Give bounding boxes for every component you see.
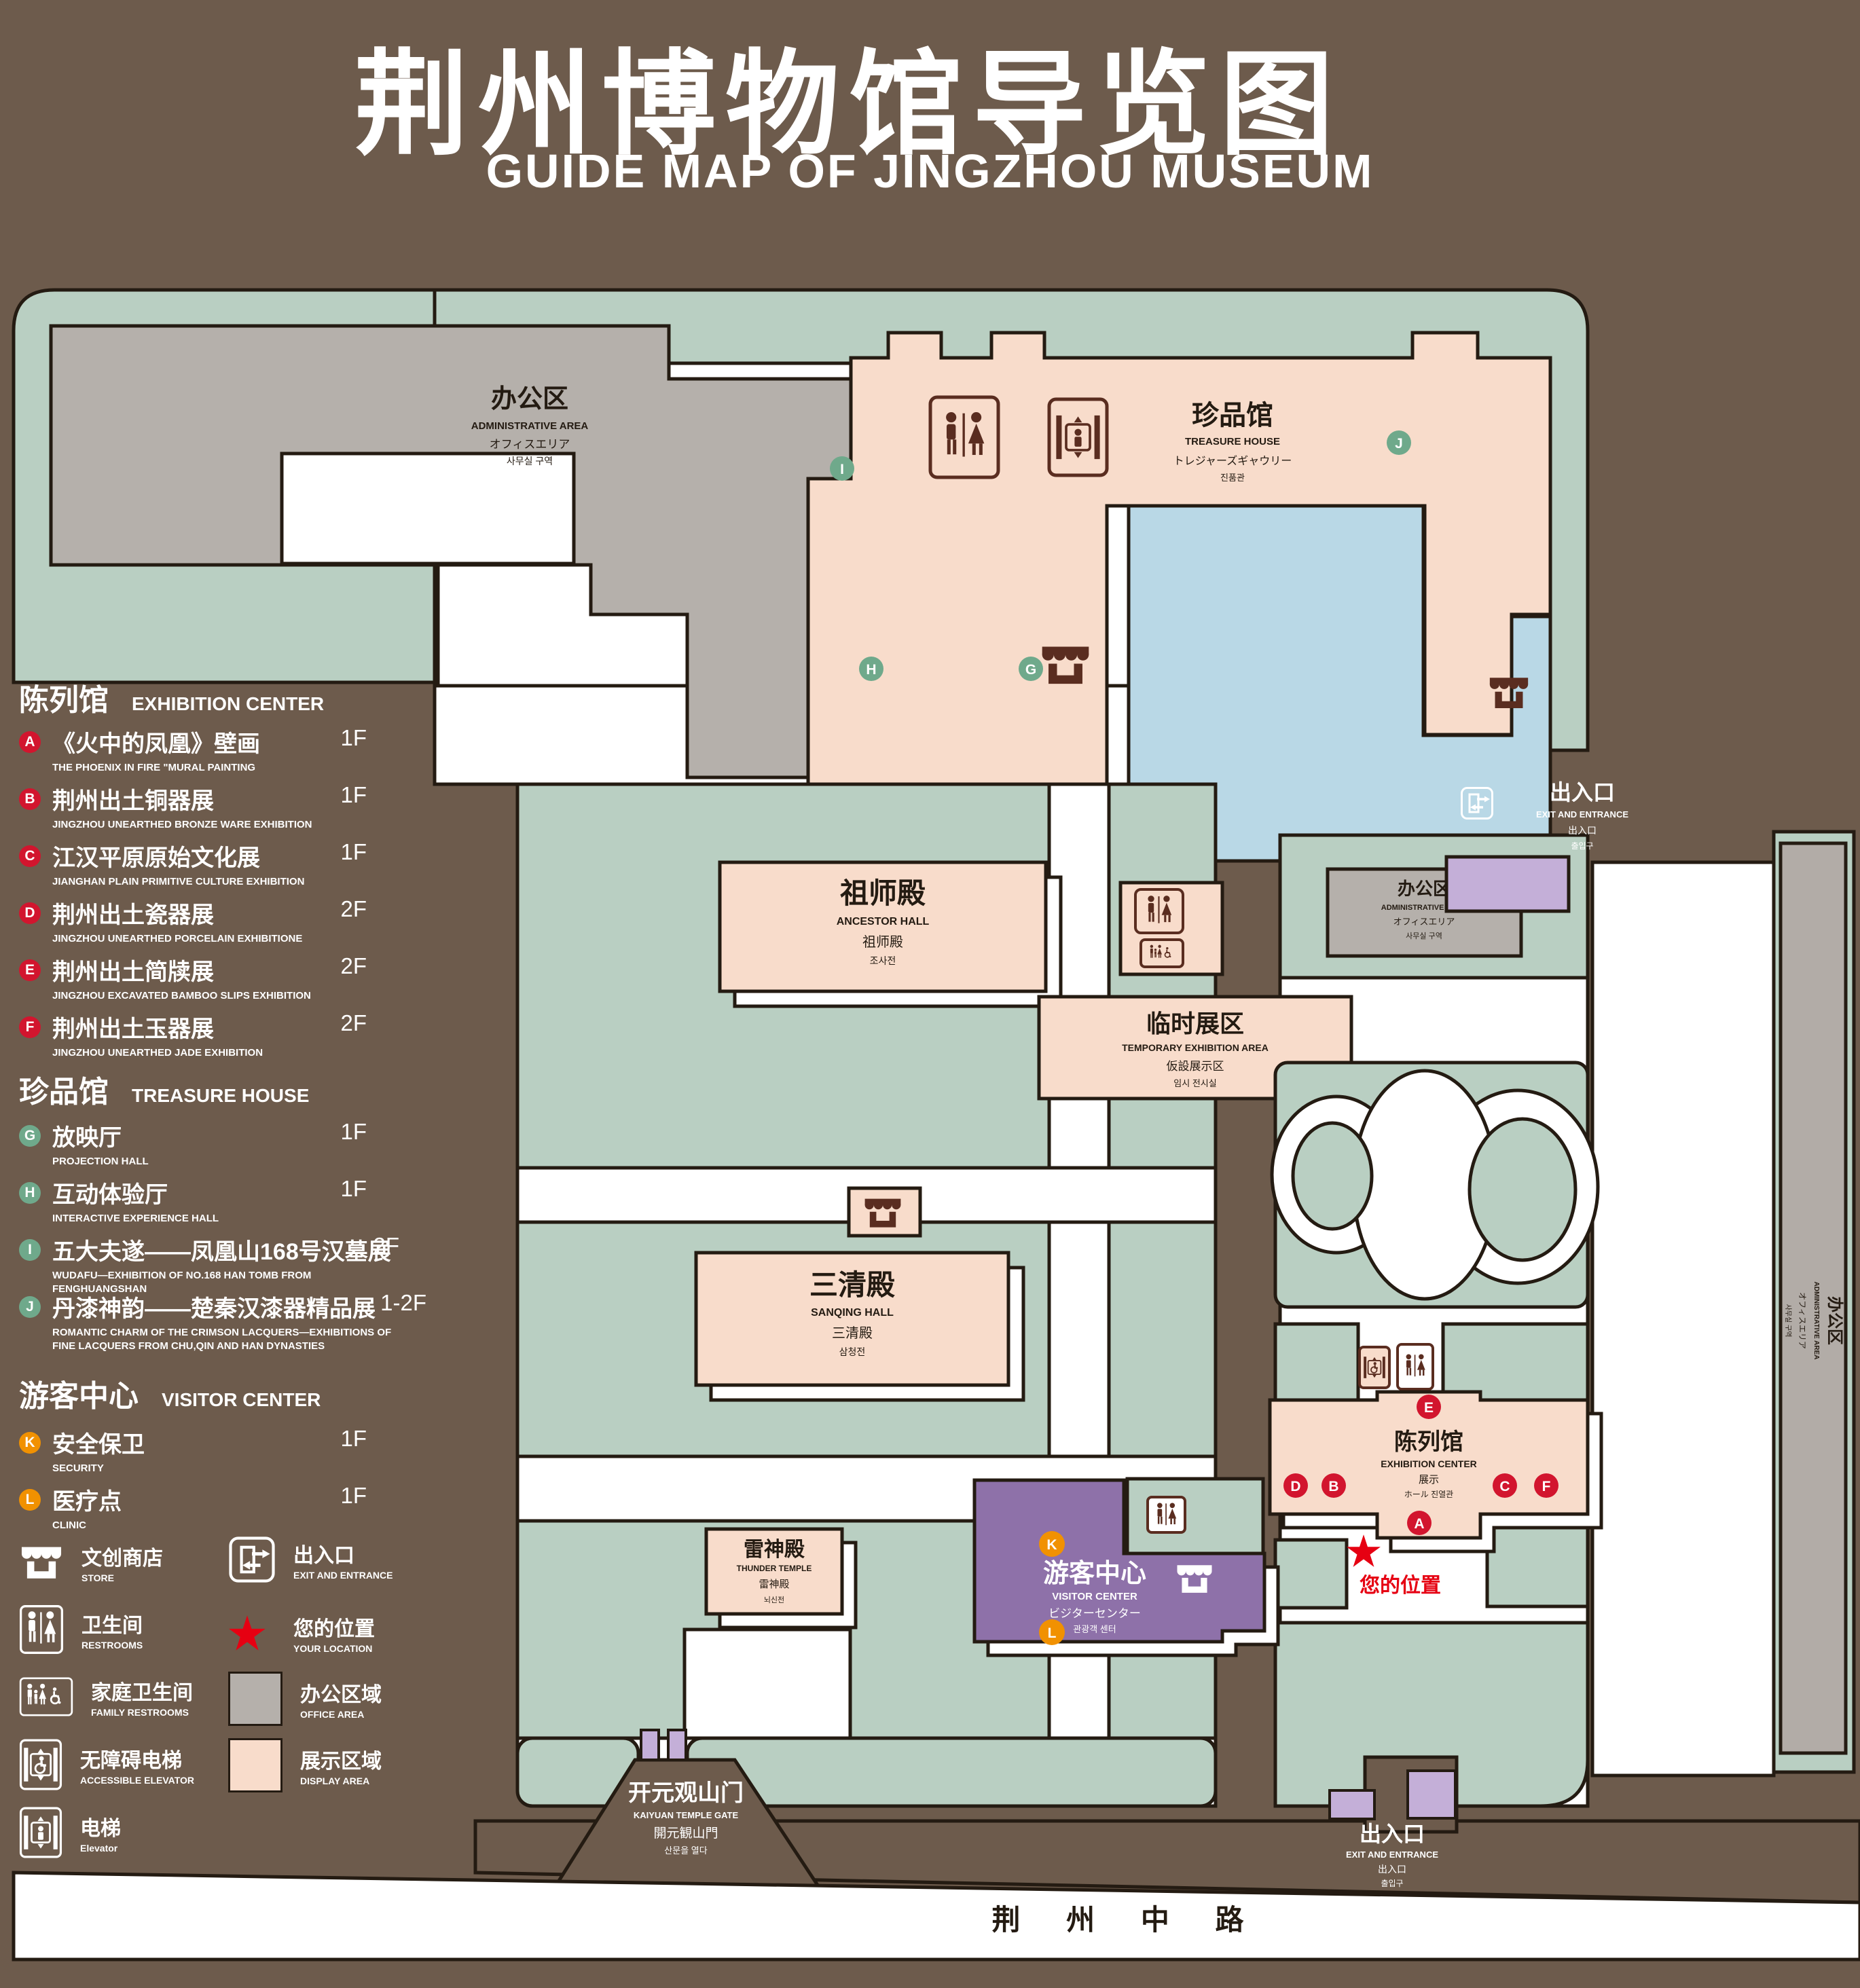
svg-text:L: L <box>1048 1625 1057 1641</box>
symbol-zh: 文创商店 <box>81 1541 163 1571</box>
item-en: INTERACTIVE EXPERIENCE HALL <box>52 1212 358 1226</box>
badge-a: A <box>19 731 41 753</box>
sanqing-label-ja: 三清殿 <box>832 1325 873 1341</box>
ancestor-label-en: ANCESTOR HALL <box>837 916 930 927</box>
admin-tl-label-ja: オフィスエリア <box>490 438 570 451</box>
symbol-zh: 无障碍电梯 <box>80 1744 194 1773</box>
badge-f: F <box>19 1016 41 1038</box>
legend-item-c: C江汉平原原始文化展1F JIANGHAN PLAIN PRIMITIVE CU… <box>19 839 367 889</box>
exit-tr-ko: 출입구 <box>1571 841 1593 851</box>
item-en: JIANGHAN PLAIN PRIMITIVE CULTURE EXHIBIT… <box>52 875 358 889</box>
exit-b-en: EXIT AND ENTRANCE <box>1346 1849 1438 1860</box>
court-gate-right <box>687 1738 1216 1806</box>
gate-pillar-left <box>641 1730 659 1760</box>
section-title-zh: 游客中心 <box>19 1380 139 1413</box>
symbol-zh: 卫生间 <box>81 1608 143 1638</box>
legend-symbol-office-area: 办公区域OFFICE AREA <box>228 1672 382 1726</box>
item-en: ROMANTIC CHARM OF THE CRIMSON LACQUERS—E… <box>52 1326 405 1352</box>
symbol-zh: 出入口 <box>293 1539 393 1568</box>
svg-text:C: C <box>1499 1479 1510 1494</box>
accessible-elevator-icon <box>24 1748 58 1782</box>
item-floor: 1F <box>340 1119 367 1145</box>
visitor-label-zh: 游客中心 <box>1043 1559 1146 1588</box>
garden-island-left <box>1293 1123 1372 1229</box>
legend-item-j: J丹漆神韵——楚秦汉漆器精品展1-2F ROMANTIC CHARM OF TH… <box>19 1290 426 1352</box>
item-zh: 《火中的凤凰》壁画 <box>52 725 260 758</box>
map-badge-d: D <box>1283 1473 1308 1498</box>
exit-b-ko: 출입구 <box>1381 1879 1403 1888</box>
badge-h: H <box>19 1182 41 1204</box>
map-badge-h: H <box>859 657 883 681</box>
thunder-label-zh: 雷神殿 <box>744 1539 805 1561</box>
garden <box>1272 1063 1598 1307</box>
building-sanqing-hall: 三清殿 SANQING HALL 三清殿 삼청전 <box>696 1253 1023 1400</box>
symbol-en: EXIT AND ENTRANCE <box>293 1570 393 1581</box>
item-floor: 1F <box>340 1176 367 1202</box>
exit-tr-zh: 出入口 <box>1550 780 1615 805</box>
admin-r-label-ja: オフィスエリア <box>1393 917 1455 927</box>
item-zh: 江汉平原原始文化展 <box>52 839 260 872</box>
office-area-swatch <box>228 1672 282 1726</box>
store-icon <box>22 1547 61 1579</box>
item-floor: 2F <box>373 1233 399 1259</box>
map-badge-e: E <box>1417 1395 1441 1419</box>
map-badge-i: I <box>830 456 854 481</box>
legend-item-l: L医疗点1F CLINIC <box>19 1483 367 1532</box>
item-en: JINGZHOU UNEARTHED PORCELAIN EXHIBITIONE <box>52 932 358 946</box>
display-area-swatch <box>228 1738 282 1792</box>
badge-g: G <box>19 1125 41 1147</box>
item-floor: 1F <box>340 1426 367 1452</box>
kaiyuan-ko: 산문을 열다 <box>664 1845 707 1856</box>
badge-b: B <box>19 788 41 810</box>
your-location-star <box>229 1615 266 1651</box>
svg-text:I: I <box>840 462 844 477</box>
ancestor-label-ko: 조사전 <box>870 955 896 966</box>
map-badge-f: F <box>1534 1473 1558 1498</box>
svg-text:K: K <box>1046 1537 1057 1553</box>
exh-label-ja: 展示 <box>1419 1474 1439 1486</box>
legend-symbol-accessible-elevator: 无障碍电梯ACCESSIBLE ELEVATOR <box>19 1738 194 1791</box>
legend-item-a: A《火中的凤凰》壁画1F THE PHOENIX IN FIRE "MURAL … <box>19 725 367 775</box>
map-badge-j: J <box>1387 430 1411 455</box>
garden-island-right <box>1470 1119 1575 1260</box>
map-badge-a: A <box>1407 1511 1432 1535</box>
badge-j: J <box>19 1296 41 1318</box>
symbol-zh: 家庭卫生间 <box>91 1676 193 1706</box>
map-badge-c: C <box>1493 1473 1517 1498</box>
building-ancestor-hall: 祖师殿 ANCESTOR HALL 祖师殿 조사전 <box>720 862 1061 1006</box>
item-zh: 荆州出土玉器展 <box>52 1010 214 1044</box>
item-zh: 荆州出土简牍展 <box>52 953 214 987</box>
ancestor-label-zh: 祖师殿 <box>840 877 926 909</box>
item-zh: 医疗点 <box>52 1483 122 1516</box>
sanqing-label-ko: 삼청전 <box>839 1346 866 1357</box>
legend-symbol-exit: 出入口EXIT AND ENTRANCE <box>228 1536 393 1583</box>
symbol-zh: 展示区域 <box>300 1744 382 1774</box>
item-en: JINGZHOU UNEARTHED JADE EXHIBITION <box>52 1046 358 1060</box>
exh-label-en: EXHIBITION CENTER <box>1381 1458 1477 1469</box>
map-badge-b: B <box>1321 1473 1346 1498</box>
treasure-label-ko: 진품관 <box>1220 473 1245 483</box>
treasure-label-en: TREASURE HOUSE <box>1185 436 1280 447</box>
item-zh: 荆州出土瓷器展 <box>52 896 214 929</box>
item-zh: 五大夫遂——凤凰山168号汉墓展 <box>52 1233 391 1266</box>
exh-label-ko: ホール 진열관 <box>1404 1490 1453 1499</box>
item-zh: 丹漆神韵——楚秦汉漆器精品展 <box>52 1290 376 1323</box>
kaiyuan-ja: 開元観山門 <box>653 1826 718 1841</box>
item-floor: 1-2F <box>380 1290 426 1316</box>
item-zh: 荆州出土铜器展 <box>52 782 214 815</box>
legend-symbol-store: 文创商店STORE <box>19 1540 163 1585</box>
temp-label-ja: 仮設展示区 <box>1167 1060 1224 1073</box>
exit-b-ja: 出入口 <box>1378 1864 1406 1875</box>
item-floor: 2F <box>340 1010 367 1036</box>
legend-item-d: D荆州出土瓷器展2F JINGZHOU UNEARTHED PORCELAIN … <box>19 896 367 946</box>
temp-label-ko: 임시 전시실 <box>1173 1078 1216 1088</box>
elevator-icon <box>24 1816 58 1849</box>
symbol-en: RESTROOMS <box>81 1640 143 1651</box>
legend-item-i: I五大夫遂——凤凰山168号汉墓展2F WUDAFU—EXHIBITION OF… <box>19 1233 399 1295</box>
exh-label-zh: 陈列馆 <box>1394 1429 1463 1455</box>
svg-text:B: B <box>1328 1479 1338 1494</box>
ancestor-label-ja: 祖师殿 <box>862 934 903 950</box>
building-exhibition-center: 陈列馆 EXHIBITION CENTER 展示 ホール 진열관 E D B C… <box>1270 1392 1601 1551</box>
item-en: JINGZHOU UNEARTHED BRONZE WARE EXHIBITIO… <box>52 818 358 832</box>
exit-icon <box>231 1539 274 1581</box>
sanqing-label-zh: 三清殿 <box>809 1269 895 1301</box>
legend-item-e: E荆州出土简牍展2F JINGZHOU EXCAVATED BAMBOO SLI… <box>19 953 367 1003</box>
item-floor: 1F <box>340 839 367 865</box>
symbol-zh: 办公区域 <box>300 1678 382 1708</box>
symbol-zh: 您的位置 <box>293 1612 375 1642</box>
legend-item-k: K安全保卫1F SECURITY <box>19 1426 367 1475</box>
visitor-label-en: VISITOR CENTER <box>1052 1591 1137 1602</box>
item-en: CLINIC <box>52 1519 358 1532</box>
svg-text:A: A <box>1414 1516 1424 1532</box>
legend-section-exhibition: 陈列馆EXHIBITION CENTER <box>19 676 324 719</box>
section-title-zh: 珍品馆 <box>19 1075 109 1109</box>
legend-item-f: F荆州出土玉器展2F JINGZHOU UNEARTHED JADE EXHIB… <box>19 1010 367 1060</box>
badge-d: D <box>19 902 41 924</box>
exit-tr-ja: 出入口 <box>1568 825 1597 836</box>
symbol-en: STORE <box>81 1572 163 1583</box>
item-en: JINGZHOU EXCAVATED BAMBOO SLIPS EXHIBITI… <box>52 989 358 1003</box>
svg-text:D: D <box>1290 1479 1300 1494</box>
exit-tr-en: EXIT AND ENTRANCE <box>1536 809 1628 820</box>
temp-label-en: TEMPORARY EXHIBITION AREA <box>1122 1042 1269 1053</box>
store-block-mid <box>849 1188 920 1236</box>
sanqing-label-en: SANQING HALL <box>811 1307 894 1319</box>
item-zh: 安全保卫 <box>52 1426 145 1459</box>
restrooms-block-mid <box>1120 883 1222 974</box>
svg-text:F: F <box>1542 1479 1551 1494</box>
legend-symbol-restrooms: 卫生间RESTROOMS <box>19 1604 143 1655</box>
admin-fr-label-ko: 사무실 구역 <box>1784 1304 1792 1338</box>
map-badge-l: L <box>1039 1619 1065 1645</box>
gate-block-purple <box>1408 1771 1455 1818</box>
thunder-label-en: THUNDER TEMPLE <box>737 1564 812 1573</box>
map-badge-k: K <box>1039 1531 1065 1557</box>
legend-symbol-elevator: 电梯Elevator <box>19 1806 121 1859</box>
gate-block-purple <box>1446 857 1569 911</box>
admin-tl-label-en: ADMINISTRATIVE AREA <box>471 420 589 432</box>
court-exh-br <box>1487 1526 1588 1606</box>
item-floor: 2F <box>340 953 367 979</box>
svg-text:H: H <box>866 662 876 678</box>
symbol-en: DISPLAY AREA <box>300 1775 382 1786</box>
symbol-en: OFFICE AREA <box>300 1709 382 1720</box>
road-name: 荆 州 中 路 <box>991 1904 1262 1936</box>
symbol-en: ACCESSIBLE ELEVATOR <box>80 1775 194 1786</box>
building-visitor-center: 游客中心 VISITOR CENTER ビジターセンター 관광객 센터 K L <box>974 1479 1278 1655</box>
building-admin-far-right: 办公区 ADMINISTRATIVE AREA オフィスエリア 사무실 구역 <box>1781 843 1846 1753</box>
item-en: SECURITY <box>52 1462 358 1475</box>
badge-l: L <box>19 1489 41 1511</box>
treasure-label-zh: 珍品馆 <box>1192 401 1273 430</box>
legend-item-b: B荆州出土铜器展1F JINGZHOU UNEARTHED BRONZE WAR… <box>19 782 367 832</box>
legend-item-h: H互动体验厅1F INTERACTIVE EXPERIENCE HALL <box>19 1176 367 1226</box>
admin-r-label-ko: 사무실 구역 <box>1406 932 1442 940</box>
building-thunder-temple: 雷神殿 THUNDER TEMPLE 雷神殿 뇌신전 <box>706 1529 856 1627</box>
admin-fr-label-ja: オフィスエリア <box>1798 1292 1807 1349</box>
temp-label-zh: 临时展区 <box>1146 1010 1244 1037</box>
map-badge-g: G <box>1019 657 1043 681</box>
section-title-en: VISITOR CENTER <box>162 1389 321 1410</box>
restroom-icon <box>29 1611 56 1643</box>
page-subtitle: GUIDE MAP OF JINGZHOU MUSEUM <box>0 144 1860 198</box>
legend-symbol-your-location: 您的位置YOUR LOCATION <box>228 1612 375 1654</box>
exit-b-zh: 出入口 <box>1360 1822 1425 1846</box>
item-floor: 1F <box>340 782 367 808</box>
thunder-label-ko: 뇌신전 <box>764 1596 784 1604</box>
gate-block-purple <box>1330 1790 1374 1819</box>
legend-symbol-display-area: 展示区域DISPLAY AREA <box>228 1738 382 1792</box>
visitor-label-ja: ビジターセンター <box>1048 1607 1141 1620</box>
item-floor: 1F <box>340 725 367 751</box>
symbol-en: Elevator <box>80 1843 121 1854</box>
legend-item-g: G放映厅1F PROJECTION HALL <box>19 1119 367 1168</box>
treasure-label-ja: トレジャーズギャウリー <box>1173 455 1292 467</box>
admin-tl-label-ko: 사무실 구역 <box>507 456 553 466</box>
item-en: PROJECTION HALL <box>52 1155 358 1168</box>
path-east <box>1592 862 1774 1775</box>
section-title-zh: 陈列馆 <box>19 684 109 717</box>
admin-fr-label-en: ADMINISTRATIVE AREA <box>1812 1282 1820 1360</box>
legend-section-treasure: 珍品馆TREASURE HOUSE <box>19 1067 309 1111</box>
thunder-label-ja: 雷神殿 <box>759 1579 789 1590</box>
admin-r-label-zh: 办公区 <box>1398 879 1451 899</box>
symbol-en: FAMILY RESTROOMS <box>91 1707 193 1718</box>
badge-c: C <box>19 845 41 867</box>
item-zh: 放映厅 <box>52 1119 122 1152</box>
item-floor: 1F <box>340 1483 367 1509</box>
svg-text:E: E <box>1424 1400 1434 1416</box>
section-title-en: TREASURE HOUSE <box>132 1085 309 1106</box>
symbol-en: YOUR LOCATION <box>293 1643 375 1654</box>
svg-text:J: J <box>1395 436 1403 452</box>
legend-symbol-family-restrooms: 家庭卫生间FAMILY RESTROOMS <box>19 1672 193 1722</box>
symbol-zh: 电梯 <box>80 1811 121 1841</box>
court-exh-bl <box>1275 1540 1347 1608</box>
svg-text:G: G <box>1025 662 1036 678</box>
admin-tl-label-zh: 办公区 <box>491 385 568 413</box>
badge-k: K <box>19 1432 41 1454</box>
item-floor: 2F <box>340 896 367 922</box>
admin-fr-label-zh: 办公区 <box>1825 1296 1844 1345</box>
kaiyuan-en: KAIYUAN TEMPLE GATE <box>634 1810 739 1820</box>
visitor-label-ko: 관광객 센터 <box>1073 1624 1116 1634</box>
legend-section-visitor: 游客中心VISITOR CENTER <box>19 1372 321 1415</box>
item-en: THE PHOENIX IN FIRE "MURAL PAINTING <box>52 761 358 775</box>
badge-e: E <box>19 959 41 981</box>
gate-pillar-right <box>668 1730 686 1760</box>
your-location-label: 您的位置 <box>1360 1574 1441 1597</box>
badge-i: I <box>19 1239 41 1261</box>
family-restroom-icon <box>27 1684 60 1704</box>
kaiyuan-zh: 开元观山门 <box>628 1780 744 1806</box>
section-title-en: EXHIBITION CENTER <box>132 693 324 714</box>
item-zh: 互动体验厅 <box>52 1176 168 1209</box>
path-gate-plaza <box>685 1630 850 1738</box>
